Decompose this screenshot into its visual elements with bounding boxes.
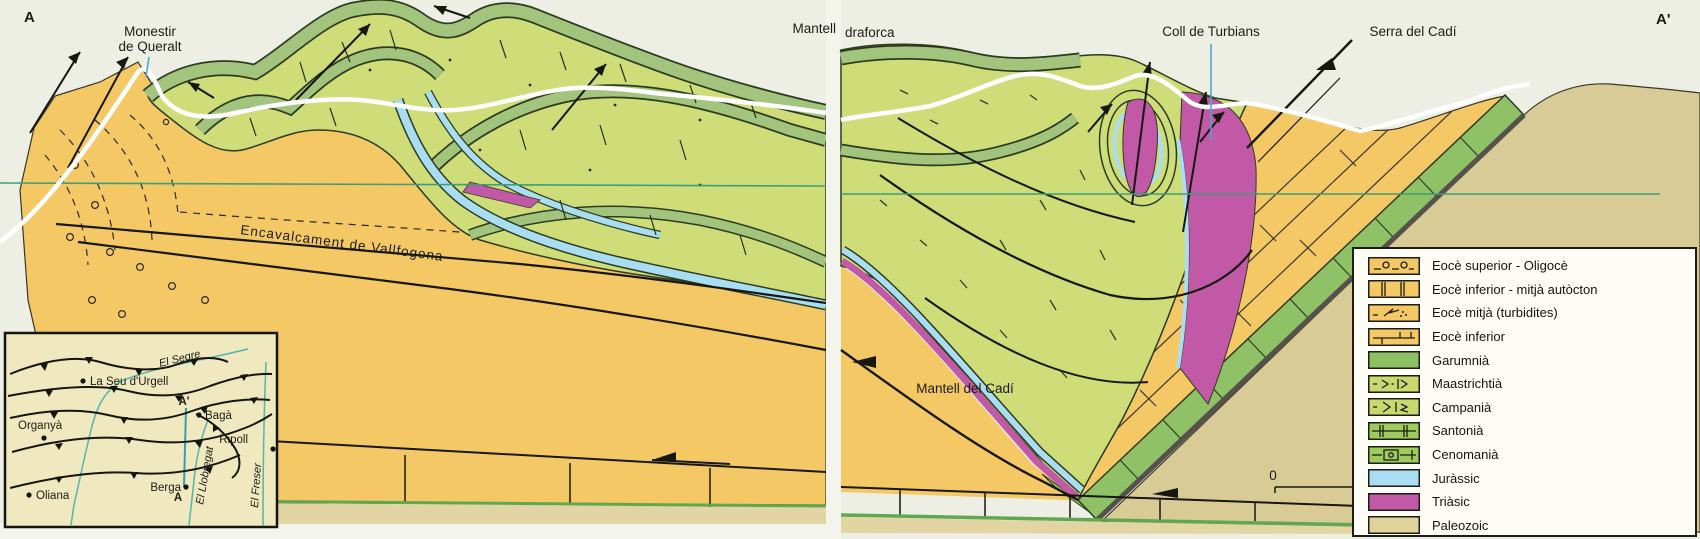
map-town-baga: Bagà: [205, 410, 232, 422]
legend-row: Campanià: [1354, 396, 1695, 420]
legend-row: Eocè superior - Oligocè: [1354, 254, 1695, 278]
panel-seam: [826, 0, 841, 539]
swatch-campania: [1368, 398, 1420, 416]
map-endpoint-a: A: [174, 492, 182, 504]
svg-text:Coll de Turbians: Coll de Turbians: [1162, 24, 1260, 39]
legend-row: Eocè mitjà (turbidites): [1354, 301, 1695, 325]
swatch-triassic: [1368, 493, 1420, 511]
legend-row: Maastrichtià: [1354, 372, 1695, 396]
legend-row: Cenomanià: [1354, 443, 1695, 467]
swatch-santonia: [1368, 422, 1420, 440]
swatch-cenomania: [1368, 446, 1420, 464]
legend-row: Paleozoic: [1354, 514, 1695, 538]
legend-row: Eocè inferior: [1354, 325, 1695, 349]
legend-row: Eocè inferior - mitjà autòcton: [1354, 278, 1695, 302]
scale-zero: 0: [1269, 468, 1277, 483]
mantell-pedraforca-left: Mantell: [792, 21, 836, 36]
legend-row: Triàsic: [1354, 490, 1695, 514]
map-endpoint-a-prime: A': [178, 396, 189, 408]
legend-row: Santonià: [1354, 419, 1695, 443]
map-town-organya: Organyà: [18, 420, 63, 432]
map-town-la-seu: La Seu d'Urgell: [90, 376, 168, 388]
swatch-paleozoic: [1368, 516, 1420, 534]
mantell-del-cadi-label: Mantell del Cadí: [916, 381, 1014, 396]
legend-row: Garumnià: [1354, 348, 1695, 372]
endpoint-a-label: A: [24, 9, 35, 26]
swatch-eoce-inferior-mitja-autocton: [1368, 280, 1420, 298]
inset-map: La Seu d'Urgell Organyà Oliana Berga Bag…: [5, 333, 277, 527]
swatch-eoce-inferior: [1368, 328, 1420, 346]
mantell-pedraforca-right: draforca: [845, 25, 895, 40]
serra-del-cadi-label: Serra del Cadí: [1369, 24, 1456, 39]
geological-cross-section: 0 2 km A A' Monestir de Queralt Mantell …: [0, 0, 1700, 539]
svg-text:de Queralt: de Queralt: [118, 39, 181, 54]
map-town-ripoll: Ripoll: [219, 434, 248, 446]
swatch-eoce-mitja-turbidites: [1368, 304, 1420, 322]
swatch-eoce-superior-oligoce: [1368, 257, 1420, 275]
swatch-maastrichtia: [1368, 375, 1420, 393]
swatch-jurassic: [1368, 469, 1420, 487]
swatch-garumnia: [1368, 351, 1420, 369]
map-town-oliana: Oliana: [36, 490, 70, 502]
legend-row: Juràssic: [1354, 466, 1695, 490]
svg-text:Monestir: Monestir: [124, 24, 176, 39]
endpoint-a-prime-label: A': [1656, 11, 1670, 28]
legend: Eocè superior - Oligocè Eocè inferior - …: [1352, 247, 1697, 537]
